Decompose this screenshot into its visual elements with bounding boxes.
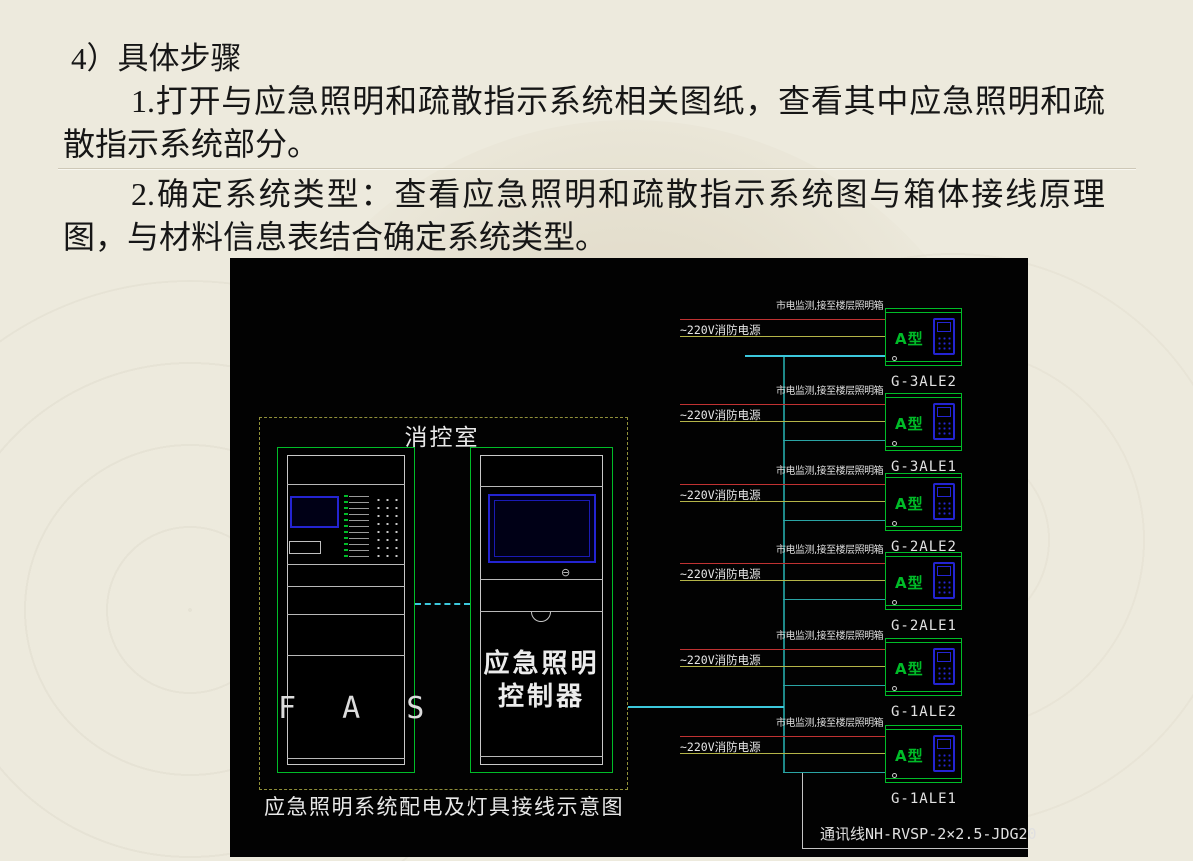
mains-monitor-line bbox=[680, 736, 885, 737]
lamp-branch-row: 市电监测,接至楼层照明箱 ~220V消防电源 A型 G-3ALE1 bbox=[680, 393, 962, 451]
box-bottom-rail bbox=[886, 691, 961, 692]
cad-wiring-diagram: 消控室 F A S ⊖ bbox=[230, 258, 1028, 857]
fas-small-panel bbox=[289, 541, 321, 554]
device-screen bbox=[937, 322, 951, 332]
mains-monitor-line bbox=[680, 404, 885, 405]
lamp-device-icon bbox=[933, 648, 955, 685]
fire-power-line bbox=[680, 580, 885, 581]
fas-divider bbox=[287, 655, 405, 656]
mains-monitor-label: 市电监测,接至楼层照明箱 bbox=[776, 462, 888, 477]
box-top-rail bbox=[886, 729, 961, 730]
box-bottom-rail bbox=[886, 605, 961, 606]
comm-cable-label: 通讯线NH-RVSP-2×2.5-JDG20 bbox=[820, 823, 1037, 844]
lamp-box-id: G-3ALE2 bbox=[878, 374, 970, 390]
comm-branch-line bbox=[745, 355, 885, 357]
fas-divider bbox=[287, 614, 405, 615]
lamp-distribution-box: A型 bbox=[885, 393, 962, 451]
lamp-type-label: A型 bbox=[895, 745, 924, 766]
fas-divider bbox=[287, 586, 405, 587]
lamp-box-id: G-2ALE1 bbox=[878, 618, 970, 634]
mains-monitor-label: 市电监测,接至楼层照明箱 bbox=[776, 714, 888, 729]
box-top-rail bbox=[886, 556, 961, 557]
controller-screen-inner bbox=[494, 500, 590, 557]
controller-label-line1: 应急照明 bbox=[483, 649, 599, 679]
device-screen bbox=[937, 652, 951, 662]
knockout-circle-icon bbox=[892, 356, 897, 361]
knockout-circle-icon bbox=[892, 441, 897, 446]
lamp-device-icon bbox=[933, 318, 955, 355]
lamp-device-icon bbox=[933, 483, 955, 520]
comm-branch-line bbox=[783, 772, 885, 773]
fas-cabinet: F A S bbox=[277, 447, 415, 773]
lamp-type-label: A型 bbox=[895, 572, 924, 593]
controller-divider bbox=[480, 486, 603, 487]
lamp-branch-row: 市电监测,接至楼层照明箱 ~220V消防电源 A型 G-3ALE2 bbox=[680, 308, 962, 366]
emergency-lighting-controller-cabinet: ⊖ 应急照明 控制器 bbox=[470, 447, 613, 773]
fire-power-line bbox=[680, 753, 885, 754]
mains-monitor-label: 市电监测,接至楼层照明箱 bbox=[776, 297, 888, 312]
fas-indicator-bars bbox=[349, 495, 369, 557]
lamp-branch-row: 市电监测,接至楼层照明箱 ~220V消防电源 A型 G-1ALE1 bbox=[680, 725, 962, 783]
fas-divider bbox=[287, 758, 405, 759]
lamp-type-label: A型 bbox=[895, 658, 924, 679]
horizontal-divider bbox=[58, 168, 1136, 170]
controller-divider bbox=[480, 579, 603, 580]
mains-monitor-label: 市电监测,接至楼层照明箱 bbox=[776, 627, 888, 642]
controller-display-screen bbox=[488, 494, 596, 563]
controller-label: 应急照明 控制器 bbox=[471, 648, 612, 714]
comm-branch-line bbox=[783, 599, 885, 600]
diagram-caption: 应急照明系统配电及灯具接线示意图 bbox=[264, 791, 624, 821]
device-screen bbox=[937, 407, 951, 417]
lamp-branch-row: 市电监测,接至楼层照明箱 ~220V消防电源 A型 G-1ALE2 bbox=[680, 638, 962, 696]
fire-power-line bbox=[680, 666, 885, 667]
box-bottom-rail bbox=[886, 778, 961, 779]
controller-label-line2: 控制器 bbox=[498, 682, 585, 712]
comm-cable-leader-vertical bbox=[802, 772, 803, 848]
lamp-device-icon bbox=[933, 735, 955, 772]
box-top-rail bbox=[886, 642, 961, 643]
step-1-paragraph: 1.打开与应急照明和疏散指示系统相关图纸，查看其中应急照明和疏散指示系统部分。 bbox=[63, 80, 1105, 166]
mains-monitor-line bbox=[680, 563, 885, 564]
box-top-rail bbox=[886, 397, 961, 398]
slide-heading: 4）具体步骤 bbox=[71, 33, 242, 78]
comm-branch-line bbox=[783, 520, 885, 521]
knockout-circle-icon bbox=[892, 521, 897, 526]
comm-cable-leader-horizontal bbox=[802, 848, 1028, 849]
lamp-distribution-box: A型 bbox=[885, 308, 962, 366]
step-2-paragraph: 2.确定系统类型：查看应急照明和疏散指示系统图与箱体接线原理图，与材料信息表结合… bbox=[63, 173, 1105, 259]
fas-display-screen bbox=[290, 496, 339, 528]
fas-divider bbox=[287, 564, 405, 565]
fire-power-line bbox=[680, 421, 885, 422]
knockout-circle-icon bbox=[892, 773, 897, 778]
device-keypad bbox=[937, 501, 951, 516]
fas-divider bbox=[287, 484, 405, 485]
lamp-box-id: G-1ALE1 bbox=[878, 791, 970, 807]
lamp-branch-row: 市电监测,接至楼层照明箱 ~220V消防电源 A型 G-2ALE2 bbox=[680, 473, 962, 531]
lamp-device-icon bbox=[933, 562, 955, 599]
comm-branch-line bbox=[783, 440, 885, 441]
device-screen bbox=[937, 739, 951, 749]
device-keypad bbox=[937, 421, 951, 436]
box-top-rail bbox=[886, 477, 961, 478]
mains-monitor-label: 市电监测,接至楼层照明箱 bbox=[776, 382, 888, 397]
fire-power-line bbox=[680, 501, 885, 502]
lamp-type-label: A型 bbox=[895, 328, 924, 349]
fire-power-line bbox=[680, 336, 885, 337]
presentation-slide: 4）具体步骤 1.打开与应急照明和疏散指示系统相关图纸，查看其中应急照明和疏散指… bbox=[0, 0, 1193, 861]
knockout-circle-icon bbox=[892, 686, 897, 691]
mains-monitor-label: 市电监测,接至楼层照明箱 bbox=[776, 541, 888, 556]
device-keypad bbox=[937, 336, 951, 351]
device-keypad bbox=[937, 666, 951, 681]
device-screen bbox=[937, 566, 951, 576]
fas-label: F A S bbox=[278, 691, 414, 726]
lamp-type-label: A型 bbox=[895, 413, 924, 434]
device-keypad bbox=[937, 580, 951, 595]
cabinet-link-dashed-line bbox=[415, 603, 470, 605]
box-bottom-rail bbox=[886, 361, 961, 362]
knockout-circle-icon bbox=[892, 600, 897, 605]
box-bottom-rail bbox=[886, 526, 961, 527]
box-bottom-rail bbox=[886, 446, 961, 447]
comm-branch-line bbox=[783, 685, 885, 686]
fas-led-column bbox=[344, 495, 348, 557]
fas-keypad bbox=[373, 495, 402, 557]
lamp-device-icon bbox=[933, 403, 955, 440]
controller-divider bbox=[480, 756, 603, 757]
mains-monitor-line bbox=[680, 649, 885, 650]
mains-monitor-line bbox=[680, 319, 885, 320]
lamp-distribution-box: A型 bbox=[885, 473, 962, 531]
lamp-distribution-box: A型 bbox=[885, 552, 962, 610]
lamp-branch-row: 市电监测,接至楼层照明箱 ~220V消防电源 A型 G-2ALE1 bbox=[680, 552, 962, 610]
lamp-box-id: G-1ALE2 bbox=[878, 704, 970, 720]
power-button-icon: ⊖ bbox=[561, 567, 570, 578]
device-keypad bbox=[937, 753, 951, 768]
lamp-type-label: A型 bbox=[895, 493, 924, 514]
device-screen bbox=[937, 487, 951, 497]
controller-output-line bbox=[628, 706, 784, 708]
lamp-distribution-box: A型 bbox=[885, 725, 962, 783]
lamp-distribution-box: A型 bbox=[885, 638, 962, 696]
box-top-rail bbox=[886, 312, 961, 313]
mains-monitor-line bbox=[680, 484, 885, 485]
